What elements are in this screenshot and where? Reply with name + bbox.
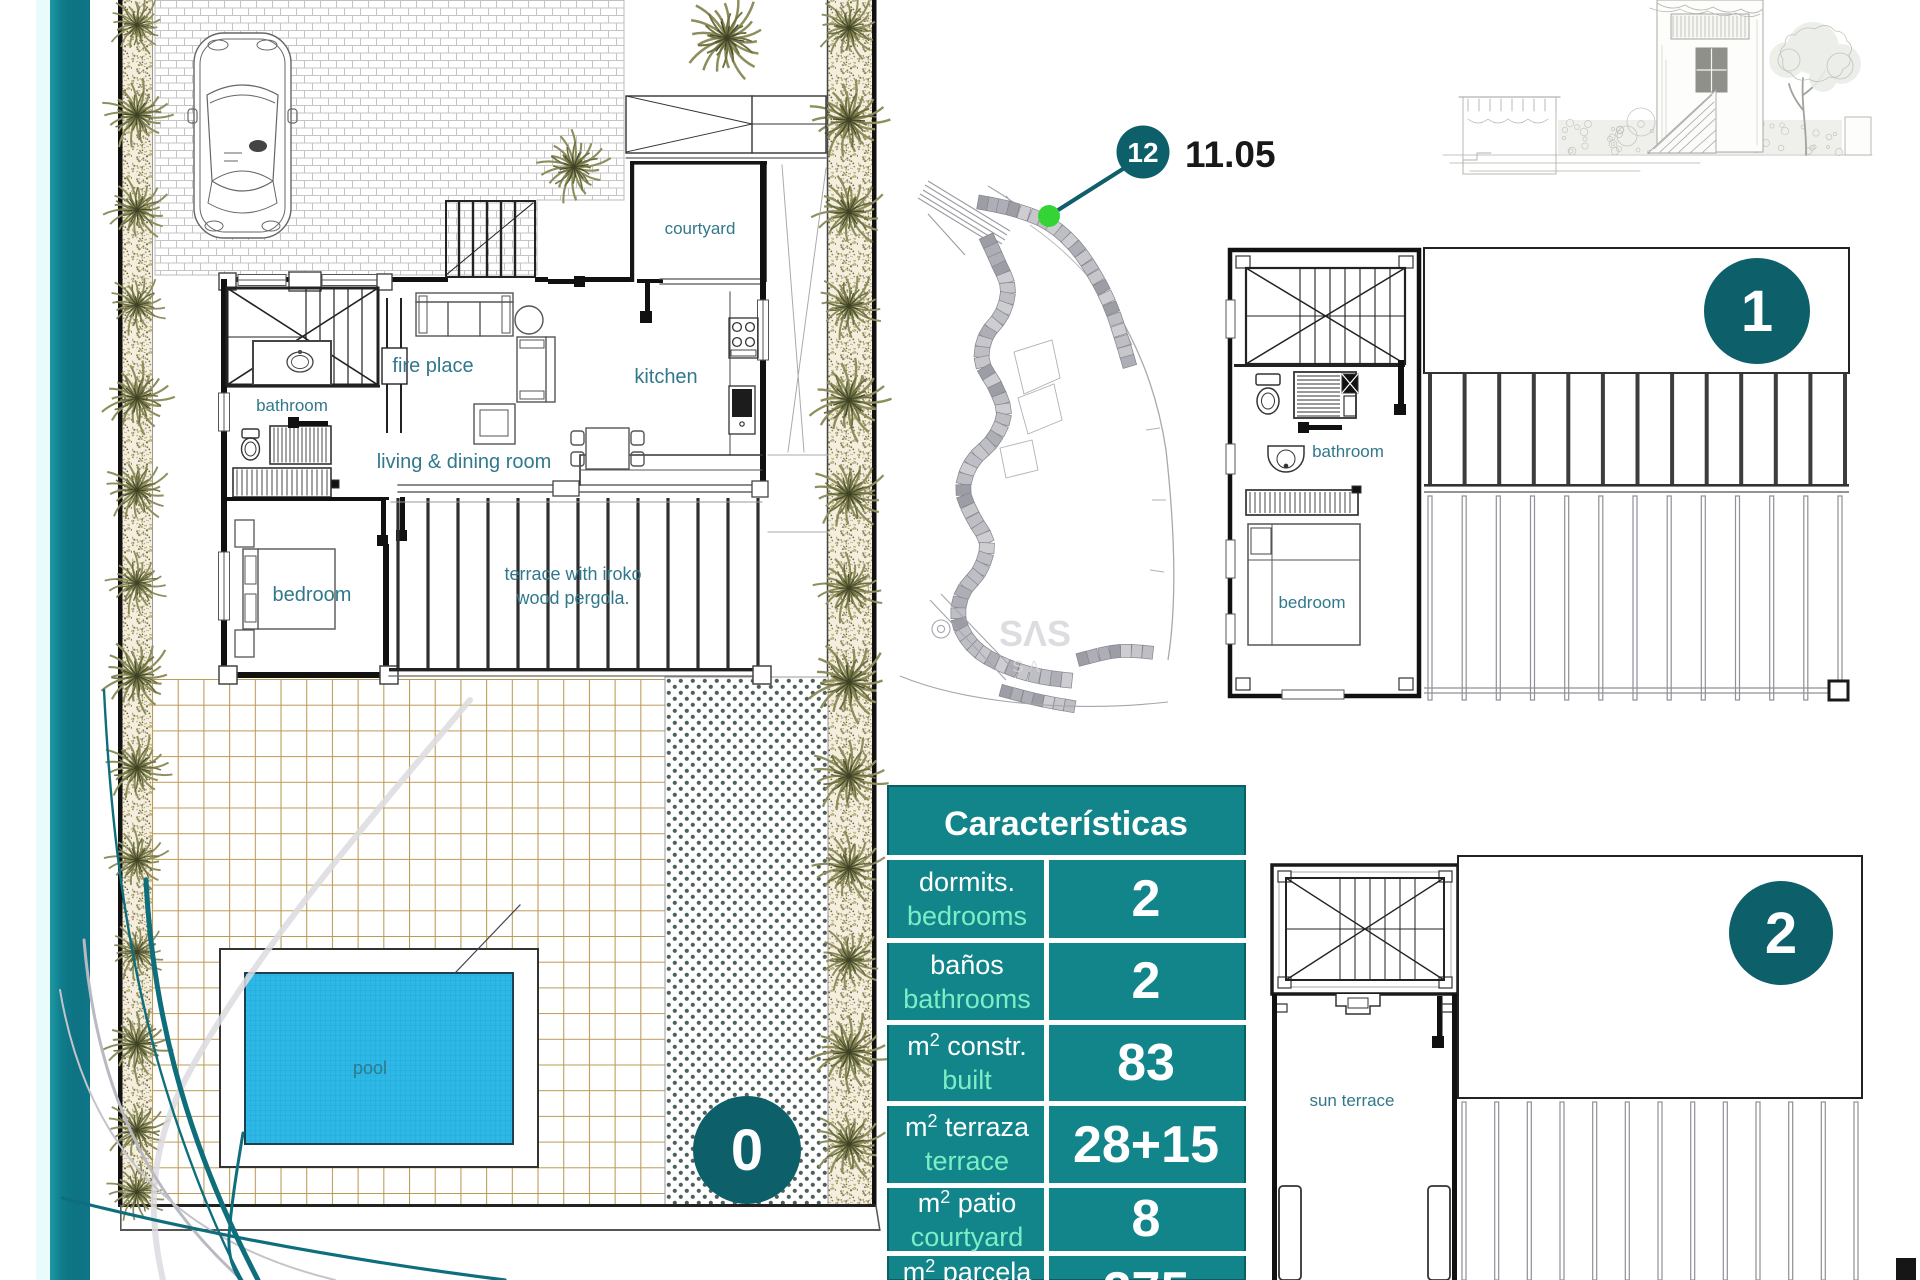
svg-text:28+15: 28+15 <box>1073 1116 1219 1174</box>
svg-text:11.05: 11.05 <box>1185 134 1276 175</box>
svg-text:terrace with iroko: terrace with iroko <box>504 564 641 584</box>
svg-text:m2 parcela: m2 parcela <box>903 1256 1033 1280</box>
svg-text:terrace: terrace <box>925 1146 1009 1176</box>
svg-text:courtyard: courtyard <box>911 1222 1024 1252</box>
svg-text:2: 2 <box>1765 901 1797 966</box>
svg-text:S Λ: S Λ <box>1012 657 1040 676</box>
svg-text:fire place: fire place <box>392 355 473 377</box>
svg-text:83: 83 <box>1117 1034 1175 1092</box>
svg-text:sun terrace: sun terrace <box>1309 1091 1394 1110</box>
svg-text:12: 12 <box>1127 137 1158 168</box>
svg-text:baños: baños <box>930 950 1004 980</box>
svg-text:Características: Características <box>944 805 1188 843</box>
svg-text:SΛS: SΛS <box>999 613 1071 654</box>
svg-text:m2 constr.: m2 constr. <box>907 1030 1027 1061</box>
svg-text:275: 275 <box>1103 1262 1190 1280</box>
svg-text:kitchen: kitchen <box>634 366 697 388</box>
svg-text:2: 2 <box>1132 870 1161 928</box>
svg-text:dormits.: dormits. <box>919 867 1015 897</box>
svg-text:bathroom: bathroom <box>256 396 328 415</box>
svg-text:courtyard: courtyard <box>665 219 736 238</box>
svg-text:living & dining room: living & dining room <box>377 451 552 473</box>
svg-text:m2 patio: m2 patio <box>918 1187 1017 1218</box>
svg-text:pool: pool <box>353 1058 387 1078</box>
svg-text:bedroom: bedroom <box>1278 593 1345 612</box>
svg-text:bedroom: bedroom <box>273 584 352 606</box>
svg-text:8: 8 <box>1132 1190 1161 1248</box>
svg-text:wood pergola.: wood pergola. <box>515 588 629 608</box>
svg-text:1: 1 <box>1741 279 1773 344</box>
svg-text:2: 2 <box>1132 952 1161 1010</box>
svg-text:bedrooms: bedrooms <box>907 901 1027 931</box>
svg-text:built: built <box>942 1065 992 1095</box>
svg-text:bathroom: bathroom <box>1312 442 1384 461</box>
svg-text:m2 terraza: m2 terraza <box>905 1111 1030 1142</box>
svg-text:0: 0 <box>731 1118 763 1183</box>
svg-text:bathrooms: bathrooms <box>903 984 1031 1014</box>
